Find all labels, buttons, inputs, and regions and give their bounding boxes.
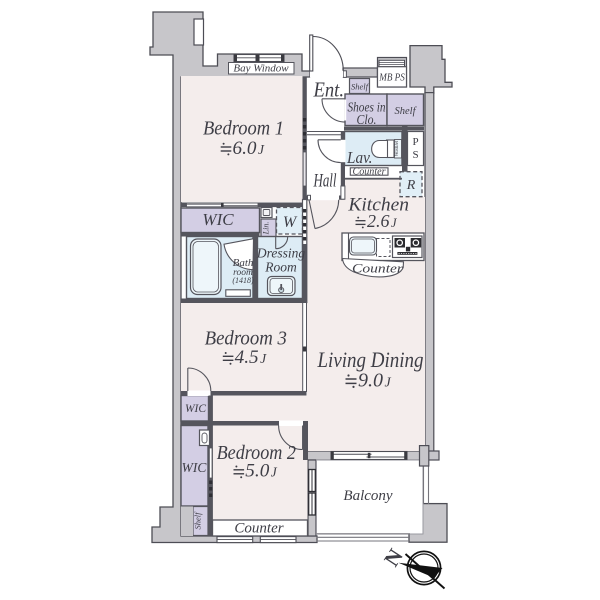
svg-text:Living Dining: Living Dining — [317, 347, 424, 372]
svg-text:P: P — [412, 136, 418, 148]
svg-text:Shelf: Shelf — [193, 511, 203, 530]
svg-text:Bedroom 3: Bedroom 3 — [205, 328, 287, 350]
svg-text:Lin.: Lin. — [262, 222, 271, 236]
svg-text:Counter: Counter — [234, 521, 283, 537]
svg-text:4.5: 4.5 — [235, 348, 259, 368]
svg-text:WIC: WIC — [185, 403, 206, 415]
svg-text:6.0: 6.0 — [233, 139, 258, 159]
svg-text:J: J — [271, 465, 278, 480]
svg-text:Shelf: Shelf — [395, 106, 418, 117]
svg-text:Hall: Hall — [313, 171, 337, 192]
svg-text:J: J — [258, 142, 265, 157]
svg-text:(1418): (1418) — [232, 276, 254, 285]
svg-text:Clo.: Clo. — [357, 112, 377, 127]
svg-text:5.0: 5.0 — [245, 462, 270, 482]
svg-text:Shelf: Shelf — [351, 82, 370, 92]
svg-text:Room: Room — [264, 260, 297, 275]
svg-text:Counter: Counter — [353, 166, 386, 177]
svg-text:Bay Window: Bay Window — [233, 63, 289, 75]
svg-text:J: J — [260, 351, 267, 366]
svg-text:9.0: 9.0 — [358, 370, 383, 392]
svg-text:MB PS: MB PS — [378, 73, 405, 84]
svg-text:Ent.: Ent. — [313, 78, 344, 102]
svg-text:R: R — [406, 178, 416, 193]
svg-text:Dressing: Dressing — [256, 246, 306, 261]
svg-text:Bedroom 1: Bedroom 1 — [203, 118, 284, 140]
svg-text:S: S — [412, 149, 418, 161]
svg-text:WIC: WIC — [182, 460, 208, 475]
svg-text:Washlet: Washlet — [395, 140, 400, 156]
svg-text:Counter: Counter — [352, 261, 404, 276]
svg-text:Balcony: Balcony — [343, 488, 392, 504]
svg-text:Bedroom 2: Bedroom 2 — [217, 442, 296, 464]
svg-text:W: W — [283, 214, 298, 231]
svg-text:WIC: WIC — [202, 210, 234, 229]
svg-text:J: J — [385, 376, 392, 391]
svg-text:2.6: 2.6 — [367, 211, 390, 231]
svg-text:Lav.: Lav. — [346, 148, 372, 167]
